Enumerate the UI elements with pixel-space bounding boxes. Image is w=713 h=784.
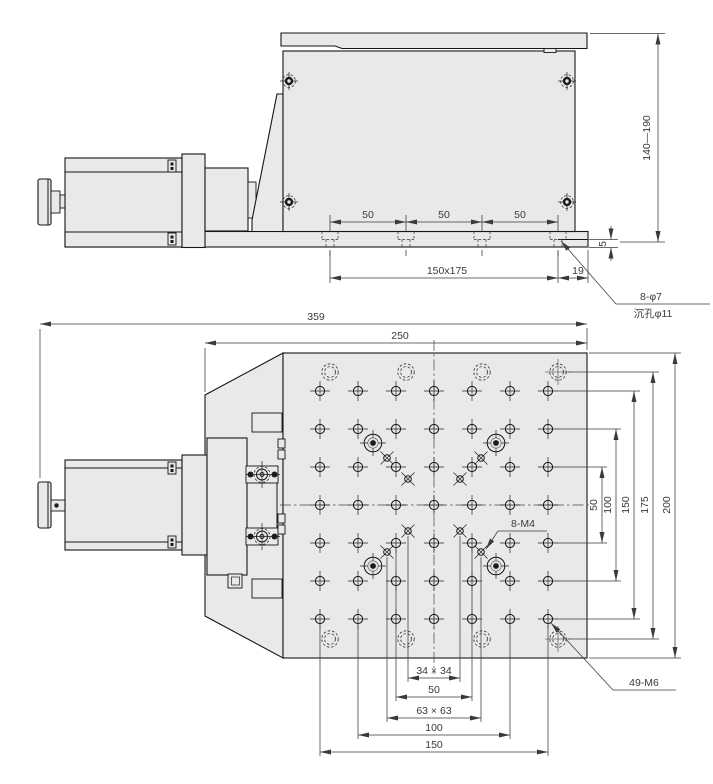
coupling-block-plan bbox=[182, 455, 207, 555]
dim-50-b: 50 bbox=[438, 209, 450, 221]
platform-plate bbox=[283, 353, 587, 658]
motor-connector bbox=[168, 536, 176, 548]
plan-view: 359 250 50 100 150 175 200 bbox=[38, 311, 681, 756]
callout-m6: 49-M6 bbox=[629, 677, 659, 689]
dim-cbore-175: 175 bbox=[639, 496, 651, 514]
clamp-mark bbox=[278, 514, 285, 523]
motor-connector bbox=[168, 462, 176, 474]
drive-column bbox=[207, 438, 247, 575]
dim-rows-100: 100 bbox=[602, 496, 614, 514]
clamp-mark bbox=[278, 450, 285, 459]
motor-connector bbox=[168, 233, 176, 245]
dim-edge-offset: 19 bbox=[572, 265, 584, 277]
dim-50-c: 50 bbox=[514, 209, 526, 221]
platform-tab bbox=[544, 49, 556, 53]
top-platform bbox=[281, 33, 587, 49]
callout-counterbore: 沉孔φ11 bbox=[634, 307, 673, 320]
drawing-canvas: 50 50 50 150x175 19 140—190 5 8-φ7 沉孔φ11 bbox=[0, 0, 713, 784]
dim-m4-inner: 34 × 34 bbox=[416, 665, 451, 677]
dim-depth-200: 200 bbox=[661, 496, 673, 514]
motor-shaft-step bbox=[60, 195, 65, 208]
dim-lip-thickness: 5 bbox=[597, 241, 609, 247]
dim-50-a: 50 bbox=[362, 209, 374, 221]
rail-end-top bbox=[252, 413, 282, 432]
cbore-leader bbox=[561, 241, 616, 304]
dim-rows-150: 150 bbox=[620, 496, 632, 514]
dim-top-width: 250 bbox=[391, 330, 409, 342]
clamp-mark bbox=[278, 525, 285, 534]
rail-end-bottom bbox=[252, 579, 282, 598]
jack-body bbox=[283, 51, 575, 232]
motor-knob bbox=[38, 179, 51, 225]
dim-rows-50: 50 bbox=[588, 499, 600, 511]
dim-cols-150: 150 bbox=[425, 739, 443, 751]
side-view: 50 50 50 150x175 19 140—190 5 8-φ7 沉孔φ11 bbox=[38, 33, 710, 320]
dim-base-pattern: 150x175 bbox=[427, 265, 467, 277]
wedge-arm bbox=[252, 94, 283, 232]
motor-connector bbox=[168, 160, 176, 172]
motor-knob-plan bbox=[38, 482, 51, 528]
clamp-mark bbox=[278, 439, 285, 448]
dim-cols-50: 50 bbox=[428, 684, 440, 696]
coupling-block bbox=[182, 154, 205, 248]
dim-overall-length: 359 bbox=[307, 311, 325, 323]
callout-m4: 8-M4 bbox=[511, 518, 535, 530]
motor-shaft bbox=[51, 191, 60, 213]
engineering-drawing: 50 50 50 150x175 19 140—190 5 8-φ7 沉孔φ11 bbox=[0, 0, 713, 784]
motor-body bbox=[65, 158, 182, 247]
dim-height-range: 140—190 bbox=[641, 115, 653, 161]
callout-hole-size: 8-φ7 bbox=[640, 291, 662, 303]
motor-body-plan bbox=[65, 460, 182, 550]
dim-m4-outer: 63 × 63 bbox=[416, 705, 451, 717]
dim-cols-100: 100 bbox=[425, 722, 443, 734]
gearbox-block bbox=[205, 168, 248, 231]
stop-block bbox=[228, 574, 242, 588]
